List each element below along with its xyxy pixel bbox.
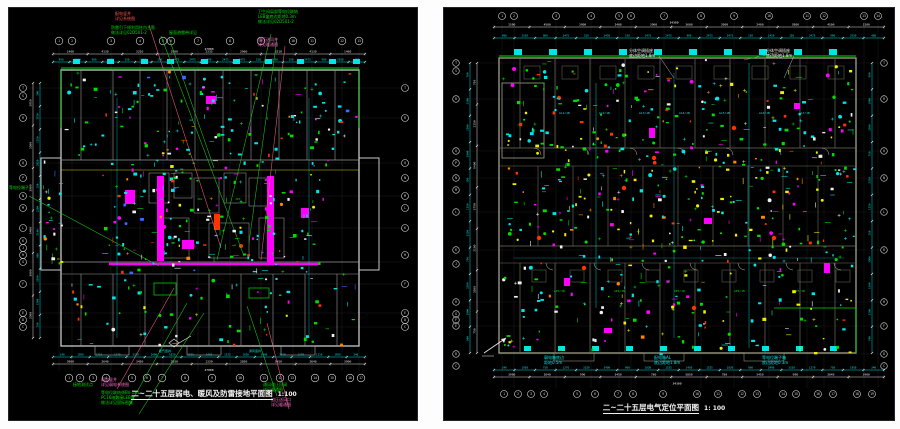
svg-text:4: 4: [543, 392, 545, 396]
svg-text:5: 5: [131, 376, 133, 380]
svg-text:900: 900: [92, 58, 97, 62]
leader-note: 配电箱AL 底边距地1.8m: [654, 355, 680, 365]
svg-text:1350: 1350: [868, 203, 872, 210]
svg-text:T: T: [404, 86, 406, 90]
sheet-title-left: 二~二十五层弱电、暖风及防雷接地平面图1:100: [129, 388, 299, 399]
svg-text:1450: 1450: [271, 58, 278, 62]
svg-text:1750: 1750: [36, 113, 40, 120]
svg-text:1250: 1250: [36, 136, 40, 143]
svg-text:1020: 1020: [645, 366, 652, 370]
svg-text:3900: 3900: [579, 23, 586, 27]
svg-text:3900: 3900: [721, 23, 728, 27]
svg-text:15: 15: [330, 376, 334, 380]
svg-text:150: 150: [584, 34, 589, 38]
svg-text:L: L: [22, 226, 24, 230]
svg-text:3300: 3300: [473, 286, 477, 293]
svg-text:9: 9: [662, 392, 664, 396]
svg-text:12: 12: [740, 392, 744, 396]
svg-text:Q: Q: [455, 149, 457, 153]
leader-note: 加压送风井 详见暖通图: [258, 37, 278, 47]
svg-text:7: 7: [617, 392, 619, 396]
svg-text:2: 2: [513, 14, 515, 18]
svg-text:3300: 3300: [29, 312, 33, 319]
svg-text:900: 900: [687, 34, 692, 38]
svg-text:L: L: [404, 206, 406, 210]
svg-text:700: 700: [466, 72, 470, 77]
leader-note: 弱电箱底边 距地0.5m: [544, 355, 564, 365]
svg-text:JD1: JD1: [159, 197, 165, 201]
svg-text:H: H: [455, 300, 457, 304]
svg-text:900: 900: [543, 34, 548, 38]
svg-text:2640: 2640: [101, 360, 108, 364]
svg-text:P: P: [22, 176, 24, 180]
svg-text:M: M: [404, 194, 406, 198]
svg-text:D: D: [883, 352, 885, 356]
svg-text:750: 750: [466, 257, 470, 262]
svg-text:8: 8: [700, 14, 702, 18]
svg-text:1525: 1525: [665, 366, 672, 370]
svg-text:3210: 3210: [275, 50, 282, 54]
svg-text:F: F: [883, 324, 885, 328]
svg-text:R: R: [404, 116, 406, 120]
svg-text:2335: 2335: [205, 50, 212, 54]
svg-text:750: 750: [830, 366, 835, 370]
svg-text:5400: 5400: [29, 227, 33, 234]
svg-text:4: 4: [139, 39, 141, 43]
svg-text:E: E: [404, 311, 406, 315]
svg-text:2250: 2250: [466, 229, 470, 236]
svg-text:3475: 3475: [563, 34, 570, 38]
svg-text:3: 3: [555, 14, 557, 18]
svg-text:S: S: [455, 69, 457, 73]
svg-text:N: N: [404, 176, 406, 180]
svg-text:N: N: [883, 176, 885, 180]
svg-text:1020: 1020: [242, 353, 249, 357]
svg-text:1200: 1200: [36, 206, 40, 213]
svg-text:2100: 2100: [473, 244, 477, 251]
svg-text:9: 9: [211, 376, 213, 380]
svg-text:4: 4: [590, 14, 592, 18]
svg-text:3475: 3475: [727, 34, 734, 38]
svg-text:10: 10: [291, 39, 295, 43]
svg-text:2400: 2400: [604, 366, 611, 370]
svg-text:C: C: [22, 325, 24, 329]
svg-text:F: F: [455, 318, 457, 322]
svg-text:1210: 1210: [316, 353, 323, 357]
svg-text:AL6/1B: AL6/1B: [759, 111, 770, 115]
svg-text:780: 780: [651, 373, 657, 377]
svg-text:5400: 5400: [473, 161, 477, 168]
svg-text:2250: 2250: [868, 177, 872, 184]
svg-text:3900: 3900: [863, 373, 870, 377]
svg-text:2: 2: [71, 39, 73, 43]
svg-text:150: 150: [748, 34, 753, 38]
svg-text:2400: 2400: [151, 353, 158, 357]
svg-text:2475: 2475: [706, 34, 713, 38]
svg-text:2400: 2400: [261, 353, 268, 357]
svg-text:3450: 3450: [136, 360, 143, 364]
svg-text:900: 900: [466, 336, 470, 341]
svg-text:14: 14: [313, 376, 317, 380]
leader-note: 等电位端子箱 底边距地0.3m: [762, 355, 788, 365]
svg-text:150: 150: [625, 34, 630, 38]
svg-text:K: K: [22, 239, 24, 243]
svg-text:240: 240: [871, 366, 876, 370]
sheet-scale-label: 1:100: [278, 391, 297, 398]
svg-text:P: P: [455, 161, 457, 165]
svg-text:N: N: [455, 176, 457, 180]
svg-text:4130: 4130: [101, 50, 108, 54]
svg-text:3: 3: [92, 376, 94, 380]
svg-text:6: 6: [630, 14, 632, 18]
svg-text:3450: 3450: [614, 373, 621, 377]
leader-note: 配电竖井 详见系统图: [115, 11, 135, 21]
svg-text:Q: Q: [22, 161, 24, 165]
svg-text:Q: Q: [404, 161, 406, 165]
svg-text:F: F: [404, 282, 406, 286]
svg-text:1460: 1460: [344, 50, 351, 54]
svg-text:3450: 3450: [756, 373, 763, 377]
svg-text:900: 900: [36, 253, 40, 258]
leader-note: 分体空调插座 底边距地1.8m: [629, 48, 655, 58]
svg-text:T: T: [883, 61, 885, 65]
svg-text:1500: 1500: [863, 23, 870, 27]
svg-text:H: H: [404, 253, 406, 257]
svg-text:C: C: [455, 364, 457, 368]
svg-text:L: L: [455, 210, 457, 214]
svg-text:240: 240: [60, 353, 65, 357]
svg-text:2640: 2640: [827, 373, 834, 377]
svg-text:K: K: [883, 248, 885, 252]
svg-text:1800: 1800: [466, 309, 470, 316]
svg-text:7: 7: [197, 39, 199, 43]
svg-text:AL4/1B: AL4/1B: [679, 111, 690, 115]
svg-text:150: 150: [36, 183, 40, 188]
svg-text:11: 11: [310, 39, 314, 43]
svg-text:150: 150: [256, 58, 261, 62]
svg-text:AP3/1B: AP3/1B: [674, 289, 685, 293]
svg-text:G: G: [22, 260, 24, 264]
svg-text:AL5/1B: AL5/1B: [719, 111, 730, 115]
sheet-scale-label: 1: 100: [704, 405, 725, 412]
svg-text:10: 10: [695, 392, 699, 396]
svg-text:2: 2: [517, 392, 519, 396]
svg-text:2100: 2100: [36, 229, 40, 236]
svg-text:240: 240: [353, 353, 358, 357]
svg-text:R: R: [883, 97, 885, 101]
svg-text:2550: 2550: [850, 34, 857, 38]
svg-text:10: 10: [767, 14, 771, 18]
svg-text:2400: 2400: [756, 23, 763, 27]
svg-text:T: T: [455, 61, 457, 65]
svg-text:3900: 3900: [792, 23, 799, 27]
svg-text:150: 150: [868, 230, 872, 235]
svg-text:AP2/1B: AP2/1B: [614, 289, 625, 293]
left-sheet-riser-hvac-grounding: 1234567891011121312345678910111213141516…: [8, 7, 418, 421]
svg-text:3300: 3300: [29, 142, 33, 149]
svg-text:700: 700: [868, 336, 872, 341]
svg-text:3900: 3900: [508, 373, 515, 377]
svg-text:4130: 4130: [309, 50, 316, 54]
svg-text:3600: 3600: [685, 23, 692, 27]
svg-text:240: 240: [502, 366, 507, 370]
svg-text:11: 11: [805, 14, 809, 18]
svg-text:E: E: [455, 324, 457, 328]
svg-text:3900: 3900: [67, 360, 74, 364]
svg-text:通风竖井: 通风竖井: [249, 348, 261, 353]
svg-text:13: 13: [862, 14, 866, 18]
svg-text:3000: 3000: [29, 269, 33, 276]
svg-text:J: J: [455, 262, 457, 266]
svg-text:12: 12: [822, 14, 826, 18]
leader-note: 分体空调插座 底边距地1.8m: [766, 48, 792, 58]
svg-text:3210: 3210: [136, 50, 143, 54]
svg-text:3475: 3475: [304, 58, 311, 62]
svg-text:C: C: [404, 325, 406, 329]
svg-text:F: F: [22, 282, 24, 286]
svg-text:8: 8: [184, 376, 186, 380]
svg-text:750: 750: [36, 322, 40, 327]
svg-text:1800: 1800: [868, 98, 872, 105]
svg-text:M: M: [455, 188, 457, 192]
svg-text:E: E: [22, 311, 24, 315]
svg-text:1950: 1950: [522, 366, 529, 370]
svg-text:480: 480: [871, 34, 876, 38]
svg-text:AP4/1B: AP4/1B: [734, 289, 745, 293]
right-sheet-electrical-points: 1234567891011121314123456789101112131415…: [443, 7, 895, 421]
svg-text:900: 900: [868, 72, 872, 77]
leader-note: 弱电竖井 详见弱电系统图: [101, 377, 129, 387]
svg-text:1950: 1950: [334, 353, 341, 357]
svg-text:R: R: [455, 97, 457, 101]
svg-text:900: 900: [748, 366, 753, 370]
svg-text:2300: 2300: [868, 309, 872, 316]
svg-text:2475: 2475: [189, 58, 196, 62]
svg-text:18: 18: [855, 392, 859, 396]
plan-layers: 1234567891011121314123456789101112131415…: [453, 8, 888, 398]
svg-text:11: 11: [716, 392, 720, 396]
svg-text:14: 14: [781, 392, 785, 396]
svg-text:480: 480: [502, 34, 507, 38]
svg-text:3450: 3450: [275, 360, 282, 364]
svg-text:3900: 3900: [344, 360, 351, 364]
svg-text:1: 1: [68, 376, 70, 380]
svg-text:900: 900: [322, 58, 327, 62]
svg-text:2: 2: [79, 376, 81, 380]
svg-text:1: 1: [501, 14, 503, 18]
svg-text:27000: 27000: [204, 368, 213, 372]
sheet-title-text: 二~二十五层电气定位平面图: [603, 403, 699, 414]
svg-text:6: 6: [146, 376, 148, 380]
svg-text:M: M: [22, 206, 24, 210]
svg-text:450: 450: [59, 58, 64, 62]
svg-text:6: 6: [594, 392, 596, 396]
svg-text:3900: 3900: [868, 256, 872, 263]
leader-note: 屋面避雷带详见: [169, 30, 197, 35]
svg-text:2850: 2850: [240, 360, 247, 364]
svg-text:3900: 3900: [650, 23, 657, 27]
svg-text:1525: 1525: [706, 366, 713, 370]
svg-text:1950: 1950: [77, 353, 84, 357]
svg-text:2640: 2640: [544, 373, 551, 377]
svg-text:R: R: [22, 116, 24, 120]
svg-text:1350: 1350: [466, 203, 470, 210]
floor-plan-drawing-left: 1234567891011121312345678910111213141516…: [9, 8, 417, 420]
svg-text:D: D: [22, 318, 24, 322]
svg-text:3000: 3000: [29, 184, 33, 191]
svg-text:1525: 1525: [224, 353, 231, 357]
svg-text:2475: 2475: [222, 58, 229, 62]
svg-text:8: 8: [632, 392, 634, 396]
svg-text:3: 3: [110, 39, 112, 43]
svg-text:34300: 34300: [669, 21, 678, 25]
svg-text:G: G: [455, 312, 457, 316]
svg-text:D: D: [404, 318, 406, 322]
svg-text:2250: 2250: [473, 120, 477, 127]
svg-text:7: 7: [663, 14, 665, 18]
svg-text:990: 990: [793, 373, 799, 377]
svg-text:暖气竖井: 暖气竖井: [159, 348, 171, 353]
svg-text:N: N: [22, 194, 24, 198]
svg-text:D: D: [455, 352, 457, 356]
svg-text:1500: 1500: [508, 23, 515, 27]
svg-text:L: L: [883, 210, 885, 214]
svg-text:14: 14: [876, 14, 880, 18]
svg-text:150: 150: [124, 58, 129, 62]
svg-text:1020: 1020: [727, 366, 734, 370]
svg-text:150: 150: [289, 58, 294, 62]
leader-note: 卫生间局部等电位联结 LEB盒底边距地0.3m 做法详见02D501-2: [258, 9, 298, 25]
svg-text:2400: 2400: [768, 366, 775, 370]
svg-text:1500: 1500: [466, 124, 470, 131]
svg-text:4500: 4500: [544, 23, 551, 27]
svg-text:1450: 1450: [604, 34, 611, 38]
svg-text:JD2: JD2: [197, 197, 203, 201]
sheet-title-text: 二~二十五层弱电、暖风及防雷接地平面图: [131, 389, 272, 400]
svg-text:2640: 2640: [309, 360, 316, 364]
svg-text:15: 15: [794, 392, 798, 396]
svg-text:JD3: JD3: [235, 197, 241, 201]
svg-text:J: J: [22, 246, 24, 250]
svg-text:750: 750: [868, 151, 872, 156]
svg-text:AL3/1B: AL3/1B: [639, 111, 650, 115]
svg-text:19: 19: [870, 392, 874, 396]
svg-text:1020: 1020: [169, 353, 176, 357]
svg-text:17: 17: [359, 376, 363, 380]
svg-text:1460: 1460: [67, 50, 74, 54]
svg-text:Q: Q: [883, 149, 885, 153]
svg-text:1: 1: [58, 39, 60, 43]
svg-text:3900: 3900: [466, 150, 470, 157]
svg-text:780: 780: [722, 373, 728, 377]
plan-layers: 1234567891011121312345678910111213141516…: [20, 25, 409, 414]
svg-text:1450: 1450: [686, 366, 693, 370]
svg-text:10: 10: [238, 376, 242, 380]
svg-text:13: 13: [755, 392, 759, 396]
svg-text:150: 150: [789, 34, 794, 38]
svg-text:2960: 2960: [240, 50, 247, 54]
svg-text:16: 16: [348, 376, 352, 380]
svg-text:9: 9: [733, 14, 735, 18]
svg-text:1500: 1500: [868, 282, 872, 289]
svg-text:750: 750: [473, 80, 477, 86]
svg-text:H: H: [22, 253, 24, 257]
svg-text:13: 13: [290, 376, 294, 380]
svg-text:T: T: [22, 86, 24, 90]
leader-note: 防雷引下线利用柱内主筋 做法详见02D501-2: [111, 25, 155, 35]
svg-text:1500: 1500: [36, 298, 40, 305]
svg-text:3300: 3300: [868, 124, 872, 131]
svg-text:150: 150: [466, 178, 470, 183]
svg-text:AP1/1B: AP1/1B: [554, 289, 565, 293]
svg-text:1320: 1320: [205, 360, 212, 364]
svg-text:990: 990: [580, 373, 586, 377]
sheet-title-right: 二~二十五层电气定位平面图1: 100: [569, 402, 759, 413]
svg-text:K: K: [455, 248, 457, 252]
svg-text:4500: 4500: [827, 23, 834, 27]
svg-text:900: 900: [625, 366, 630, 370]
svg-text:3300: 3300: [36, 275, 40, 282]
svg-text:2400: 2400: [614, 23, 621, 27]
svg-text:S: S: [22, 94, 24, 98]
svg-text:17: 17: [831, 392, 835, 396]
svg-text:5: 5: [618, 14, 620, 18]
svg-text:12: 12: [340, 39, 344, 43]
svg-text:2475: 2475: [665, 34, 672, 38]
svg-text:5: 5: [576, 392, 578, 396]
svg-text:16: 16: [816, 392, 820, 396]
svg-text:2850: 2850: [36, 159, 40, 166]
svg-text:3320: 3320: [583, 366, 590, 370]
svg-text:3475: 3475: [645, 34, 652, 38]
svg-text:3750: 3750: [473, 203, 477, 210]
svg-text:1950: 1950: [850, 366, 857, 370]
leader-note: 等电位端子: [9, 185, 29, 190]
svg-text:3475: 3475: [809, 34, 816, 38]
svg-text:AL1/1B: AL1/1B: [559, 111, 570, 115]
svg-text:1270: 1270: [563, 366, 570, 370]
svg-text:8: 8: [229, 39, 231, 43]
svg-text:900: 900: [830, 34, 835, 38]
svg-text:300: 300: [36, 90, 40, 95]
svg-text:H: H: [883, 300, 885, 304]
svg-text:1450: 1450: [768, 34, 775, 38]
svg-text:11: 11: [262, 376, 266, 380]
svg-text:2550: 2550: [522, 34, 529, 38]
svg-text:750: 750: [543, 366, 548, 370]
svg-text:C: C: [883, 364, 885, 368]
svg-text:K: K: [404, 226, 406, 230]
svg-text:13: 13: [357, 39, 361, 43]
svg-text:2300: 2300: [466, 98, 470, 105]
svg-text:3: 3: [530, 392, 532, 396]
svg-text:34300: 34300: [672, 382, 681, 386]
svg-text:1: 1: [503, 392, 505, 396]
svg-text:3320: 3320: [788, 366, 795, 370]
svg-text:2550: 2550: [337, 58, 344, 62]
svg-text:3300: 3300: [466, 282, 470, 289]
leader-note: 接地测试点: [73, 382, 93, 387]
svg-text:750: 750: [473, 328, 477, 334]
svg-text:1270: 1270: [809, 366, 816, 370]
svg-text:2850: 2850: [29, 99, 33, 106]
svg-text:5850: 5850: [685, 373, 692, 377]
